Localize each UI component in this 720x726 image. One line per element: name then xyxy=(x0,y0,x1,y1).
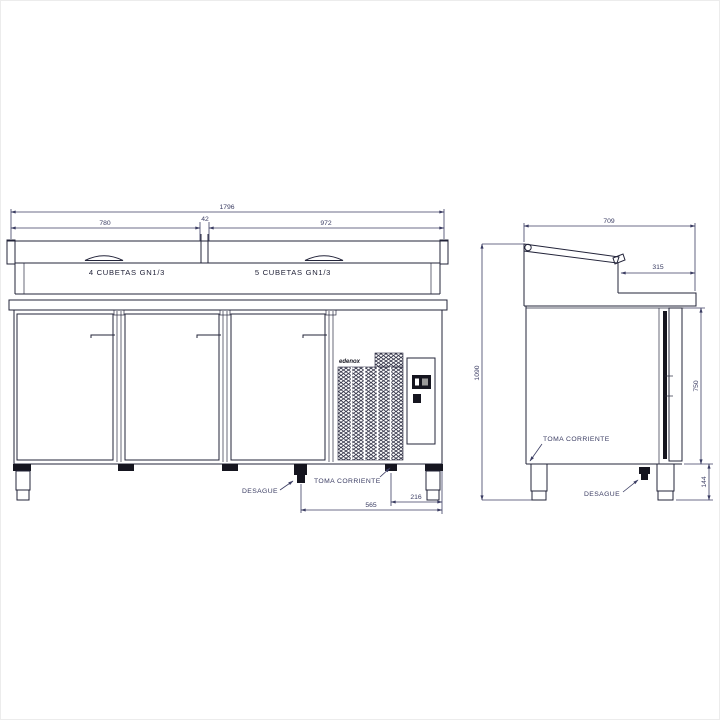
door-3 xyxy=(231,314,325,460)
right-wells-label: 5 CUBETAS GN1/3 xyxy=(255,268,331,277)
dim-total-height-label: 1090 xyxy=(474,365,481,380)
front-bottom: DESAGUE TOMA CORRIENTE 216 565 xyxy=(13,464,443,514)
side-foot-back xyxy=(532,491,546,500)
side-dim-body-height: 750 xyxy=(684,308,713,464)
lid-handle-side xyxy=(613,254,625,264)
power-entry-front xyxy=(385,464,397,471)
door-1 xyxy=(17,314,113,460)
side-view: 709 315 xyxy=(474,218,713,500)
front-wells-band: 4 CUBETAS GN1/3 5 CUBETAS GN1/3 xyxy=(15,263,440,294)
dim-worktop-depth-label: 315 xyxy=(652,264,664,271)
front-leg-right xyxy=(426,471,440,490)
front-body: edenox xyxy=(14,310,442,464)
lid-hinge xyxy=(525,244,531,250)
brand-logo: edenox xyxy=(339,359,361,365)
front-worktop-board xyxy=(9,300,447,310)
front-dim-segments: 780 42 972 xyxy=(11,216,444,241)
dim-left-top-label: 780 xyxy=(99,220,111,227)
lid-handle-left xyxy=(85,256,123,261)
hinge-mark xyxy=(326,310,336,315)
front-leg-left xyxy=(16,471,30,490)
left-wells-label: 4 CUBETAS GN1/3 xyxy=(89,268,165,277)
door-1-handle xyxy=(91,335,115,338)
side-dim-worktop: 315 xyxy=(621,264,695,273)
hinge-mark xyxy=(220,310,230,315)
dim-center-gap-label: 42 xyxy=(201,216,209,223)
hinge-mark xyxy=(114,310,124,315)
side-dim-total-height: 1090 xyxy=(474,244,541,500)
side-foot-front xyxy=(658,491,673,500)
side-drain-label: DESAGUE xyxy=(584,491,620,498)
side-lid xyxy=(524,244,625,264)
door-3-handle xyxy=(303,335,327,338)
side-worktop-board xyxy=(524,293,696,308)
door-side xyxy=(669,308,682,461)
leg-mount xyxy=(425,464,443,471)
temperature-display xyxy=(412,375,431,389)
front-view: 1796 780 42 972 xyxy=(7,204,448,514)
side-dim-leg-height: 144 xyxy=(676,464,713,500)
front-foot-right xyxy=(427,490,439,500)
side-leg-front xyxy=(657,464,674,491)
lid-handle-right xyxy=(305,256,343,261)
door-2-handle xyxy=(197,335,221,338)
dim-leg-height-label: 144 xyxy=(701,476,708,488)
side-power-label: TOMA CORRIENTE xyxy=(543,436,610,443)
top-left-end-cap xyxy=(7,240,15,264)
leg-mount xyxy=(13,464,31,471)
front-power-label: TOMA CORRIENTE xyxy=(314,478,381,485)
display-digit xyxy=(422,379,428,386)
dim-right-top-label: 972 xyxy=(320,220,332,227)
door-gasket-side xyxy=(663,311,667,459)
dim-total-width-label: 1796 xyxy=(219,204,234,211)
front-drain-label: DESAGUE xyxy=(242,488,278,495)
technical-drawing: 1796 780 42 972 xyxy=(1,1,720,721)
dim-power-offset-label: 216 xyxy=(410,494,422,501)
control-panel xyxy=(407,358,435,444)
drawing-page: 1796 780 42 972 xyxy=(0,0,720,720)
front-dim-total-width: 1796 xyxy=(11,204,444,239)
display-digit xyxy=(415,379,419,386)
power-switch xyxy=(413,394,421,403)
dim-drain-offset-label: 565 xyxy=(365,502,377,509)
door-2 xyxy=(125,314,219,460)
leg-mount xyxy=(222,464,238,471)
dim-body-height-label: 750 xyxy=(693,380,700,392)
drain-fitting-side xyxy=(639,467,650,480)
condenser-grille: edenox xyxy=(338,353,403,460)
front-top-assembly xyxy=(7,234,448,264)
drain-fitting-front xyxy=(294,464,307,483)
side-leg-back xyxy=(531,464,547,491)
front-foot-left xyxy=(17,490,29,500)
leg-mount xyxy=(118,464,134,471)
front-dim-power-offset: 216 xyxy=(391,471,442,514)
top-right-end-cap xyxy=(440,240,448,264)
dim-total-depth-label: 709 xyxy=(603,218,615,225)
